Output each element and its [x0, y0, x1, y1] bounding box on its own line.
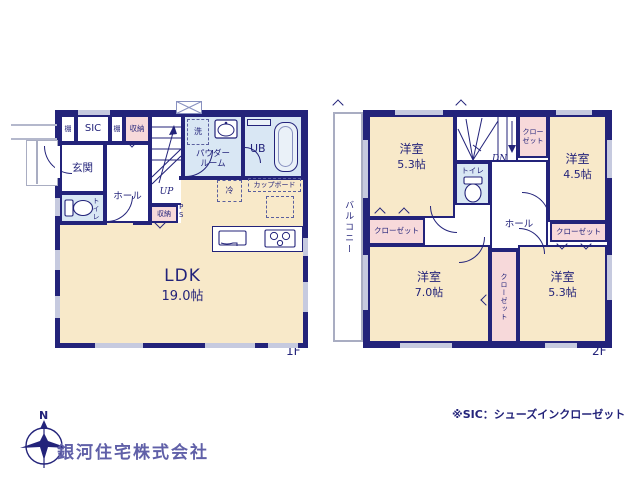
- stairs-down-icon: [457, 117, 516, 160]
- cupboard-box-2: [266, 196, 294, 218]
- vent-window-icon: [176, 101, 202, 114]
- stairs-up-icon: [152, 117, 181, 187]
- storage-label: 収納: [130, 125, 145, 134]
- room-sic: SIC: [76, 115, 110, 143]
- floor-label-2f: 2F: [592, 345, 607, 359]
- room-label: 洋室: [370, 143, 453, 157]
- fridge-label: 冷: [226, 186, 234, 195]
- cupboard-label: カップボード: [254, 181, 296, 189]
- room-balcony: バルコニー: [333, 112, 363, 342]
- approach-line: [11, 138, 57, 140]
- window-marker: [268, 343, 298, 348]
- room-shelf-2: 棚: [110, 115, 124, 143]
- window-marker: [607, 140, 612, 178]
- window-marker: [55, 296, 60, 318]
- fridge-box: 冷: [217, 180, 242, 202]
- room-size: 4.5帖: [550, 169, 605, 182]
- cupboard-box: カップボード: [248, 178, 301, 192]
- window-marker: [556, 110, 592, 115]
- ps-label: P S: [179, 203, 183, 220]
- room-closet-middle: クローゼット: [490, 250, 518, 343]
- room-closet-right: クローゼット: [550, 222, 607, 242]
- window-marker: [78, 110, 110, 115]
- window-marker: [205, 343, 255, 348]
- sink-icon: [214, 119, 238, 139]
- up-label: UP: [154, 187, 179, 197]
- toilet-icon: [462, 176, 484, 203]
- stairs-down: [455, 115, 518, 162]
- toilet-icon: [64, 197, 94, 219]
- window-marker: [395, 110, 443, 115]
- window-marker: [400, 343, 452, 348]
- room-yoshitsu-4-5: 洋室 4.5帖: [548, 115, 607, 222]
- window-marker: [363, 255, 368, 310]
- sic-label: SIC: [85, 123, 101, 135]
- kitchen-counter: [212, 226, 303, 252]
- window-marker: [303, 282, 308, 312]
- room-yoshitsu-5-3-top: 洋室 5.3帖: [368, 115, 455, 218]
- bath-counter: [247, 119, 271, 126]
- room-toilet-1f: トイレ: [60, 193, 105, 223]
- floorplan-image: 棚 SIC 棚 収納 UP: [0, 0, 640, 480]
- stairs-up: UP: [150, 115, 183, 205]
- dn-label: DN: [492, 154, 507, 164]
- entrance-opening: [55, 146, 60, 178]
- window-marker: [363, 140, 368, 198]
- approach-line: [11, 124, 57, 126]
- closet-label: クローゼット: [556, 228, 601, 237]
- window-marker: [607, 255, 612, 300]
- vent-mark: [455, 99, 466, 110]
- room-closet-top: クロー ゼット: [518, 115, 548, 158]
- room-label: 洋室: [520, 271, 605, 285]
- floorplan-1f: 棚 SIC 棚 収納 UP: [55, 110, 308, 348]
- company-name: 銀河住宅株式会社: [57, 438, 209, 463]
- closet-label: クローゼット: [374, 227, 419, 236]
- room-storage-small: 収納: [150, 205, 178, 223]
- closet-label: クロー ゼット: [523, 128, 544, 144]
- window-marker: [55, 198, 60, 216]
- room-size: 7.0帖: [370, 287, 488, 300]
- washer-label: 洗: [194, 127, 202, 136]
- room-closet-left: クローゼット: [368, 218, 425, 245]
- window-marker: [545, 343, 577, 348]
- room-toilet-2f: トイレ: [455, 162, 490, 205]
- toilet-label: トイレ: [92, 197, 100, 221]
- balcony-label: バルコニー: [343, 200, 353, 255]
- ldk-label: LDK 19.0帖: [130, 267, 235, 304]
- toilet-label: トイレ: [457, 167, 488, 176]
- room-yoshitsu-5-3-bottom: 洋室 5.3帖: [518, 245, 607, 343]
- room-shelf-1: 棚: [60, 115, 76, 143]
- room-size: 5.3帖: [520, 287, 605, 300]
- shelf-label: 棚: [114, 125, 121, 133]
- sic-note: ※SIC：シューズインクローゼット: [452, 409, 625, 422]
- room-label: 洋室: [370, 271, 488, 285]
- room-label: 洋室: [550, 153, 605, 167]
- floorplan-2f: 洋室 5.3帖 クロー ゼット: [363, 110, 612, 348]
- kitchen-sink-stove-icon: [213, 227, 301, 250]
- window-marker: [303, 238, 308, 256]
- window-marker: [95, 343, 143, 348]
- washer-box: 洗: [187, 119, 209, 145]
- entrance-label: 玄関: [72, 162, 93, 174]
- closet-label: クローゼット: [500, 273, 508, 321]
- vent-mark: [332, 99, 343, 110]
- window-marker: [55, 250, 60, 270]
- bathtub-icon: [274, 122, 298, 172]
- shelf-label: 棚: [65, 125, 72, 133]
- room-ub: UB: [243, 115, 303, 178]
- room-size: 5.3帖: [370, 159, 453, 172]
